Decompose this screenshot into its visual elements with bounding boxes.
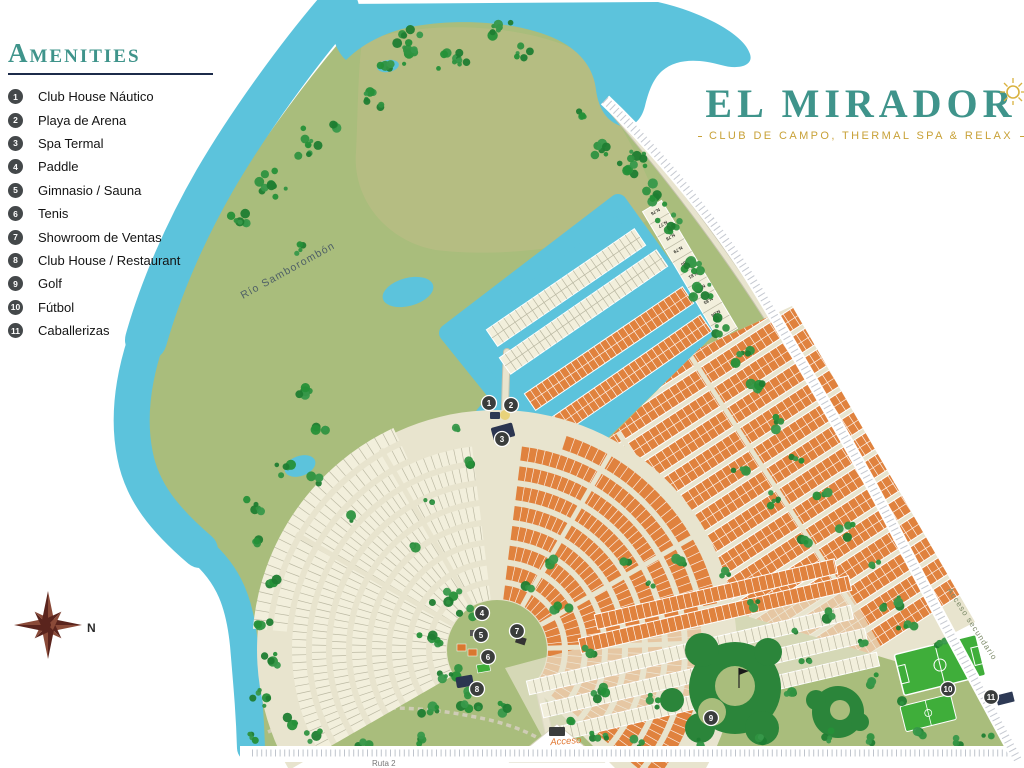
amenity-item: 1 Club House Náutico bbox=[8, 85, 223, 108]
amenities-heading: Amenities bbox=[8, 38, 223, 69]
svg-text:5: 5 bbox=[479, 631, 484, 640]
amenity-number-badge: 6 bbox=[8, 206, 23, 221]
amenity-label: Spa Termal bbox=[38, 136, 104, 151]
amenities-panel: Amenities 1 Club House Náutico 2 Playa d… bbox=[8, 38, 223, 342]
amenity-label: Paddle bbox=[38, 159, 78, 174]
amenity-label: Tenis bbox=[38, 206, 68, 221]
amenity-number-badge: 11 bbox=[8, 323, 23, 338]
amenity-item: 9 Golf bbox=[8, 272, 223, 295]
svg-text:3: 3 bbox=[500, 435, 505, 444]
amenity-label: Showroom de Ventas bbox=[38, 230, 162, 245]
amenity-item: 5 Gimnasio / Sauna bbox=[8, 179, 223, 202]
amenity-label: Club House Náutico bbox=[38, 89, 154, 104]
svg-text:1: 1 bbox=[487, 399, 492, 408]
compass-rose bbox=[14, 591, 82, 659]
masterplan-page: N.76N.77N.78N.79N.80N.81N.82N.83N.84 Acc… bbox=[0, 0, 1024, 768]
amenity-item: 8 Club House / Restaurant bbox=[8, 249, 223, 272]
map-marker-9: 9 bbox=[704, 711, 719, 726]
map-marker-2: 2 bbox=[504, 398, 519, 413]
compass-north-label: N bbox=[87, 621, 96, 635]
project-logo: EL MIRADOR CLUB DE CAMPO, THERMAL SPA & … bbox=[698, 80, 1024, 142]
amenities-divider bbox=[8, 73, 213, 75]
amenity-label: Fútbol bbox=[38, 300, 74, 315]
amenity-label: Playa de Arena bbox=[38, 113, 126, 128]
svg-text:2: 2 bbox=[509, 401, 514, 410]
amenity-item: 2 Playa de Arena bbox=[8, 108, 223, 131]
map-marker-3: 3 bbox=[495, 432, 510, 447]
sun-icon bbox=[998, 76, 1024, 106]
amenity-item: 3 Spa Termal bbox=[8, 132, 223, 155]
svg-text:9: 9 bbox=[709, 714, 714, 723]
amenity-item: 10 Fútbol bbox=[8, 296, 223, 319]
amenity-number-badge: 9 bbox=[8, 276, 23, 291]
map-marker-7: 7 bbox=[510, 624, 525, 639]
svg-text:4: 4 bbox=[480, 609, 485, 618]
amenity-item: 11 Caballerizas bbox=[8, 319, 223, 342]
route-label: Ruta 2 bbox=[372, 759, 396, 768]
svg-text:8: 8 bbox=[475, 685, 480, 694]
map-marker-4: 4 bbox=[475, 606, 490, 621]
amenity-number-badge: 7 bbox=[8, 230, 23, 245]
amenity-number-badge: 2 bbox=[8, 113, 23, 128]
amenity-label: Golf bbox=[38, 276, 62, 291]
map-marker-11: 11 bbox=[984, 690, 999, 705]
amenity-item: 7 Showroom de Ventas bbox=[8, 225, 223, 248]
map-marker-10: 10 bbox=[941, 682, 956, 697]
amenity-number-badge: 3 bbox=[8, 136, 23, 151]
amenity-item: 6 Tenis bbox=[8, 202, 223, 225]
amenity-number-badge: 10 bbox=[8, 300, 23, 315]
amenity-number-badge: 5 bbox=[8, 183, 23, 198]
map-marker-6: 6 bbox=[481, 650, 496, 665]
amenity-label: Club House / Restaurant bbox=[38, 253, 180, 268]
amenity-label: Gimnasio / Sauna bbox=[38, 183, 141, 198]
amenity-label: Caballerizas bbox=[38, 323, 110, 338]
logo-title: EL MIRADOR bbox=[698, 80, 1024, 127]
amenity-number-badge: 1 bbox=[8, 89, 23, 104]
svg-text:11: 11 bbox=[987, 693, 996, 702]
svg-text:10: 10 bbox=[944, 685, 953, 694]
amenity-number-badge: 4 bbox=[8, 159, 23, 174]
amenity-item: 4 Paddle bbox=[8, 155, 223, 178]
svg-text:7: 7 bbox=[515, 627, 520, 636]
map-marker-1: 1 bbox=[482, 396, 497, 411]
amenity-number-badge: 8 bbox=[8, 253, 23, 268]
logo-subtitle: CLUB DE CAMPO, THERMAL SPA & RELAX bbox=[698, 130, 1024, 142]
map-marker-5: 5 bbox=[474, 628, 489, 643]
map-marker-8: 8 bbox=[470, 682, 485, 697]
svg-text:6: 6 bbox=[486, 653, 491, 662]
